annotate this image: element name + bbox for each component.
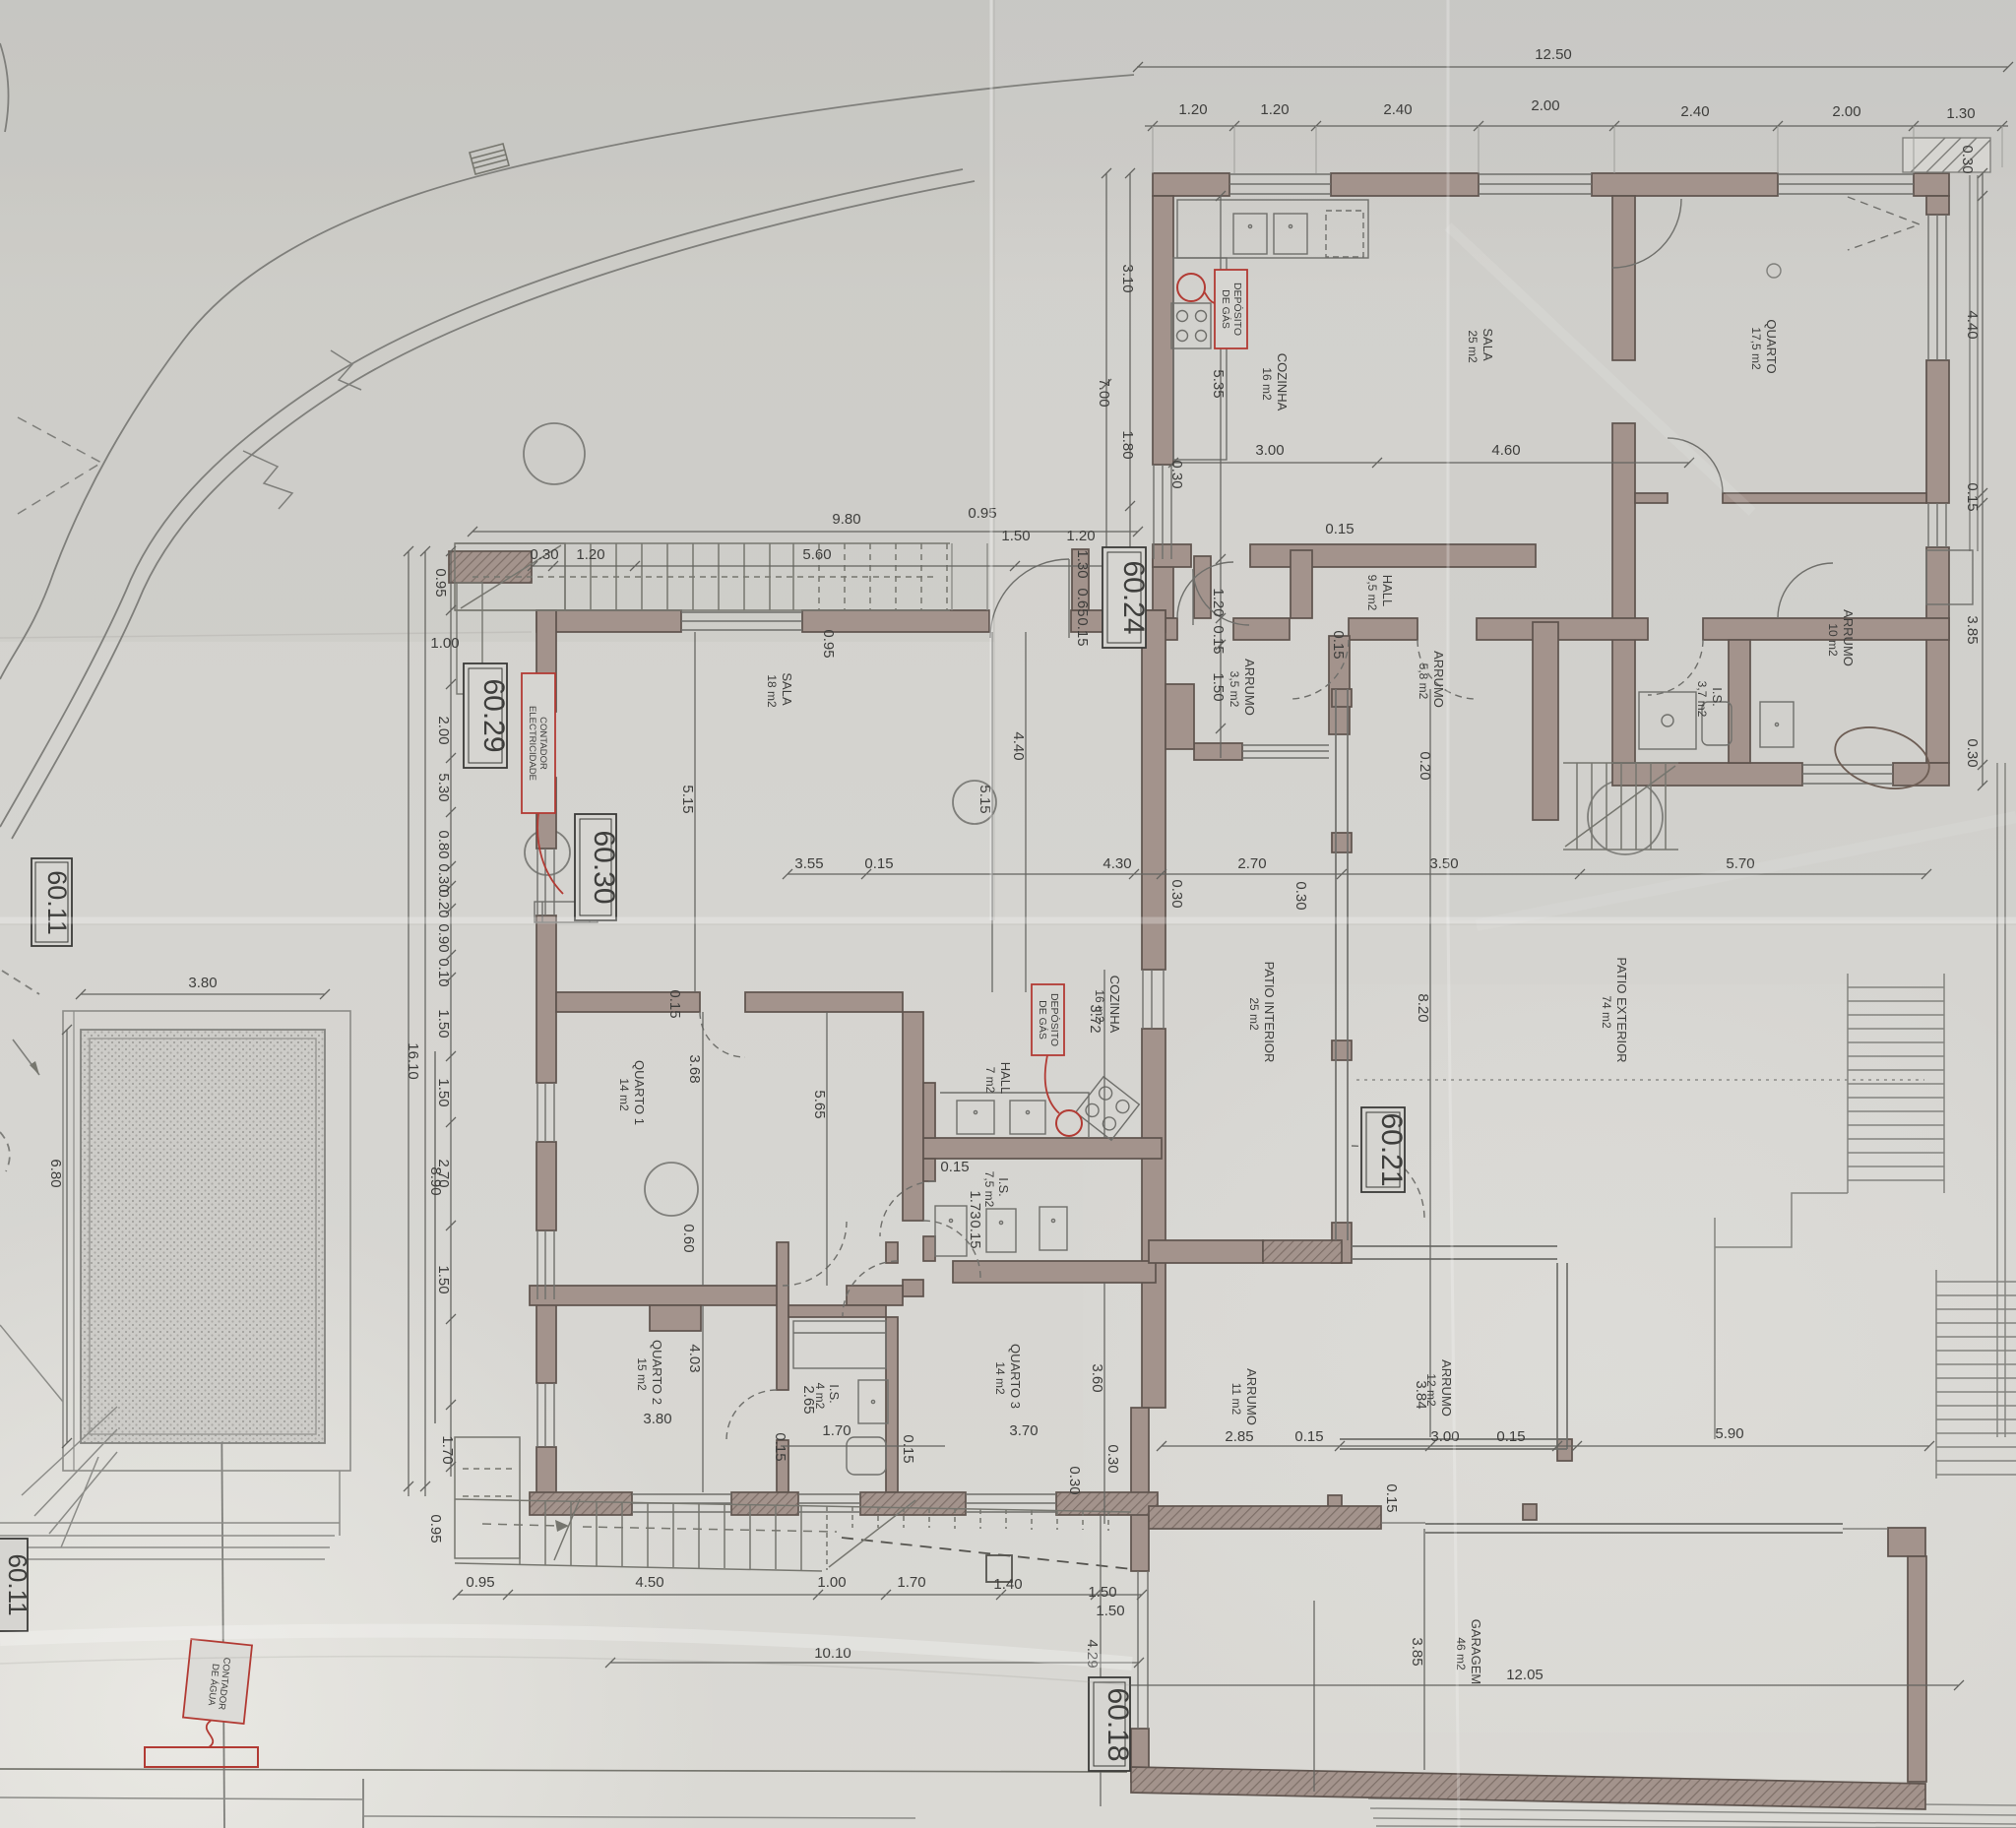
svg-text:0.30: 0.30 <box>1964 738 1981 767</box>
svg-text:3.00: 3.00 <box>1255 442 1284 459</box>
svg-text:0.95: 0.95 <box>466 1574 494 1591</box>
svg-text:1.20: 1.20 <box>1178 101 1207 118</box>
svg-text:0.20: 0.20 <box>1417 751 1433 780</box>
svg-text:25 m2: 25 m2 <box>1466 330 1480 363</box>
svg-text:HALL: HALL <box>998 1062 1013 1095</box>
svg-text:74 m2: 74 m2 <box>1600 995 1613 1029</box>
svg-text:1.20: 1.20 <box>1066 528 1095 544</box>
svg-text:18 m2: 18 m2 <box>765 674 779 708</box>
svg-text:3.55: 3.55 <box>794 855 823 872</box>
svg-text:12.05: 12.05 <box>1506 1667 1543 1683</box>
svg-text:60.11: 60.11 <box>42 870 72 935</box>
svg-text:0.30: 0.30 <box>1066 1466 1083 1494</box>
svg-text:0.95: 0.95 <box>820 629 837 658</box>
svg-text:0.15: 0.15 <box>1383 1483 1400 1512</box>
svg-text:17,5 m2: 17,5 m2 <box>1749 327 1763 370</box>
svg-text:0.30: 0.30 <box>530 546 558 563</box>
svg-text:COZINHA: COZINHA <box>1275 353 1290 411</box>
svg-text:PATIO EXTERIOR: PATIO EXTERIOR <box>1614 957 1629 1062</box>
svg-text:1.50: 1.50 <box>435 1009 452 1038</box>
svg-text:60.21: 60.21 <box>1375 1112 1408 1186</box>
svg-text:0.30: 0.30 <box>1959 145 1976 173</box>
svg-text:10 m2: 10 m2 <box>1826 623 1840 657</box>
svg-text:0.15: 0.15 <box>1325 521 1354 537</box>
svg-text:7.00: 7.00 <box>1096 378 1112 407</box>
svg-text:1.73: 1.73 <box>967 1190 983 1219</box>
svg-text:QUARTO 2: QUARTO 2 <box>650 1340 664 1405</box>
svg-text:5.60: 5.60 <box>802 546 831 563</box>
svg-text:0.90: 0.90 <box>435 923 452 952</box>
svg-text:SALA: SALA <box>780 672 794 706</box>
svg-text:0.15: 0.15 <box>1210 625 1227 654</box>
svg-text:4.40: 4.40 <box>1010 731 1027 760</box>
svg-text:5.15: 5.15 <box>679 785 696 813</box>
svg-text:14 m2: 14 m2 <box>993 1361 1007 1395</box>
svg-text:0.15: 0.15 <box>1964 482 1981 511</box>
svg-text:0.15: 0.15 <box>666 989 683 1018</box>
svg-text:3.80: 3.80 <box>188 975 217 991</box>
svg-text:6.80: 6.80 <box>47 1159 64 1187</box>
svg-text:3.70: 3.70 <box>1009 1422 1038 1439</box>
svg-text:60.18: 60.18 <box>1102 1687 1134 1761</box>
svg-text:3,5 m2: 3,5 m2 <box>1228 671 1241 708</box>
svg-text:0.30: 0.30 <box>1168 879 1185 908</box>
svg-text:0.20: 0.20 <box>435 889 452 917</box>
svg-text:25 m2: 25 m2 <box>1247 997 1261 1031</box>
svg-text:DE GÁS: DE GÁS <box>1220 289 1232 329</box>
svg-text:5.65: 5.65 <box>811 1090 828 1118</box>
svg-text:3.68: 3.68 <box>686 1054 703 1083</box>
svg-text:8.90: 8.90 <box>427 1166 444 1195</box>
svg-text:SALA: SALA <box>1480 328 1495 361</box>
svg-text:0.30: 0.30 <box>1292 881 1309 910</box>
svg-text:60.24: 60.24 <box>1117 560 1150 634</box>
svg-text:9.80: 9.80 <box>832 511 860 528</box>
svg-text:0.10: 0.10 <box>435 958 452 986</box>
svg-text:5.30: 5.30 <box>435 773 452 801</box>
svg-text:1.30: 1.30 <box>1074 549 1091 578</box>
svg-text:3.50: 3.50 <box>1429 855 1458 872</box>
svg-text:DEPÓSITO: DEPÓSITO <box>1048 993 1061 1046</box>
svg-text:60.30: 60.30 <box>588 830 620 904</box>
svg-text:0.15: 0.15 <box>967 1220 983 1248</box>
svg-text:0.95: 0.95 <box>427 1514 444 1543</box>
svg-text:1.50: 1.50 <box>1001 528 1030 544</box>
svg-text:0.30: 0.30 <box>1104 1444 1121 1473</box>
svg-text:2.70: 2.70 <box>1237 855 1266 872</box>
svg-text:0.80: 0.80 <box>435 830 452 858</box>
svg-text:7 m2: 7 m2 <box>983 1067 997 1094</box>
svg-text:DE GÁS: DE GÁS <box>1037 1000 1049 1040</box>
svg-text:3.10: 3.10 <box>1119 264 1136 292</box>
svg-text:60.29: 60.29 <box>477 678 510 752</box>
svg-text:0.15: 0.15 <box>1496 1428 1525 1445</box>
svg-text:I.S.: I.S. <box>996 1177 1011 1197</box>
svg-text:16.10: 16.10 <box>405 1042 421 1080</box>
svg-text:0.15: 0.15 <box>772 1432 788 1461</box>
svg-text:0.15: 0.15 <box>900 1434 916 1463</box>
svg-text:5,8 m2: 5,8 m2 <box>1417 663 1430 700</box>
svg-text:7,5 m2: 7,5 m2 <box>982 1171 996 1208</box>
svg-text:DEPÓSITO: DEPÓSITO <box>1231 283 1244 336</box>
svg-text:15 m2: 15 m2 <box>635 1357 649 1391</box>
svg-text:0.15: 0.15 <box>940 1159 969 1175</box>
svg-text:1.70: 1.70 <box>822 1422 850 1439</box>
svg-text:1.30: 1.30 <box>1946 105 1975 122</box>
svg-text:16 m2: 16 m2 <box>1260 367 1274 401</box>
svg-text:0.30: 0.30 <box>435 863 452 892</box>
svg-text:9,5 m2: 9,5 m2 <box>1365 575 1379 611</box>
svg-text:1.50: 1.50 <box>435 1078 452 1106</box>
svg-text:3.60: 3.60 <box>1089 1363 1105 1392</box>
svg-text:1.50: 1.50 <box>1210 672 1227 701</box>
svg-text:4.60: 4.60 <box>1491 442 1520 459</box>
svg-text:1.50: 1.50 <box>435 1265 452 1293</box>
svg-text:4 m2: 4 m2 <box>813 1383 827 1410</box>
svg-text:11 m2: 11 m2 <box>1229 1383 1243 1416</box>
svg-text:QUARTO 1: QUARTO 1 <box>632 1060 647 1125</box>
svg-text:ELECTRICIDADE: ELECTRICIDADE <box>527 706 537 781</box>
svg-text:3.80: 3.80 <box>643 1411 671 1427</box>
svg-text:I.S.: I.S. <box>827 1384 842 1404</box>
svg-text:14 m2: 14 m2 <box>617 1078 631 1111</box>
svg-text:GARAGEM: GARAGEM <box>1469 1619 1483 1684</box>
svg-text:12 m2: 12 m2 <box>1424 1373 1438 1407</box>
svg-text:ARRUMO: ARRUMO <box>1244 1368 1259 1425</box>
svg-text:2.40: 2.40 <box>1383 101 1412 118</box>
svg-text:4.50: 4.50 <box>635 1574 663 1591</box>
svg-text:3,7 m2: 3,7 m2 <box>1695 681 1709 718</box>
svg-text:12.50: 12.50 <box>1535 46 1572 63</box>
svg-text:0.15: 0.15 <box>1330 630 1347 659</box>
svg-text:1.70: 1.70 <box>439 1435 456 1464</box>
svg-text:60.11: 60.11 <box>3 1553 32 1615</box>
svg-text:2.00: 2.00 <box>1531 97 1559 114</box>
svg-text:I.S.: I.S. <box>1710 687 1725 707</box>
svg-text:2.00: 2.00 <box>1832 103 1860 120</box>
svg-text:CONTADOR: CONTADOR <box>537 717 548 770</box>
svg-text:ARRUMO: ARRUMO <box>1431 651 1446 708</box>
svg-text:4.40: 4.40 <box>1964 310 1981 339</box>
svg-text:4.30: 4.30 <box>1102 855 1131 872</box>
svg-text:1.70: 1.70 <box>897 1574 925 1591</box>
svg-text:2.00: 2.00 <box>435 716 452 744</box>
svg-text:2.85: 2.85 <box>1225 1428 1253 1445</box>
svg-text:1.50: 1.50 <box>1096 1603 1124 1619</box>
svg-text:1.00: 1.00 <box>817 1574 846 1591</box>
svg-text:0.15: 0.15 <box>864 855 893 872</box>
svg-text:8.20: 8.20 <box>1415 993 1431 1022</box>
svg-text:COZINHA: COZINHA <box>1107 976 1122 1034</box>
svg-text:PATIO INTERIOR: PATIO INTERIOR <box>1262 962 1277 1063</box>
svg-text:0.15: 0.15 <box>1294 1428 1323 1445</box>
svg-text:0.65: 0.65 <box>1074 588 1091 616</box>
svg-text:4.03: 4.03 <box>686 1344 703 1372</box>
svg-text:5.90: 5.90 <box>1715 1425 1743 1442</box>
svg-text:3.85: 3.85 <box>1409 1637 1425 1666</box>
svg-text:5.35: 5.35 <box>1210 369 1227 398</box>
svg-text:2.40: 2.40 <box>1680 103 1709 120</box>
svg-text:ARRUMO: ARRUMO <box>1439 1359 1454 1417</box>
svg-text:1.40: 1.40 <box>993 1576 1022 1593</box>
svg-text:3.85: 3.85 <box>1964 615 1981 644</box>
svg-text:1.20: 1.20 <box>1210 588 1227 616</box>
svg-text:0.15: 0.15 <box>1074 617 1091 646</box>
svg-text:QUARTO 3: QUARTO 3 <box>1008 1344 1023 1409</box>
svg-text:QUARTO: QUARTO <box>1764 319 1779 373</box>
svg-text:0.60: 0.60 <box>680 1224 697 1252</box>
svg-text:16 m2: 16 m2 <box>1093 989 1106 1023</box>
svg-text:1.20: 1.20 <box>1260 101 1289 118</box>
svg-text:1.20: 1.20 <box>576 546 604 563</box>
svg-text:1.00: 1.00 <box>430 635 459 652</box>
svg-text:1.50: 1.50 <box>1088 1584 1116 1601</box>
svg-text:ARRUMO: ARRUMO <box>1242 659 1257 716</box>
svg-text:0.95: 0.95 <box>432 568 449 597</box>
svg-text:0.30: 0.30 <box>1168 460 1185 488</box>
svg-text:HALL: HALL <box>1380 575 1395 607</box>
svg-text:1.80: 1.80 <box>1119 430 1136 459</box>
svg-text:ARRUMO: ARRUMO <box>1841 609 1856 666</box>
